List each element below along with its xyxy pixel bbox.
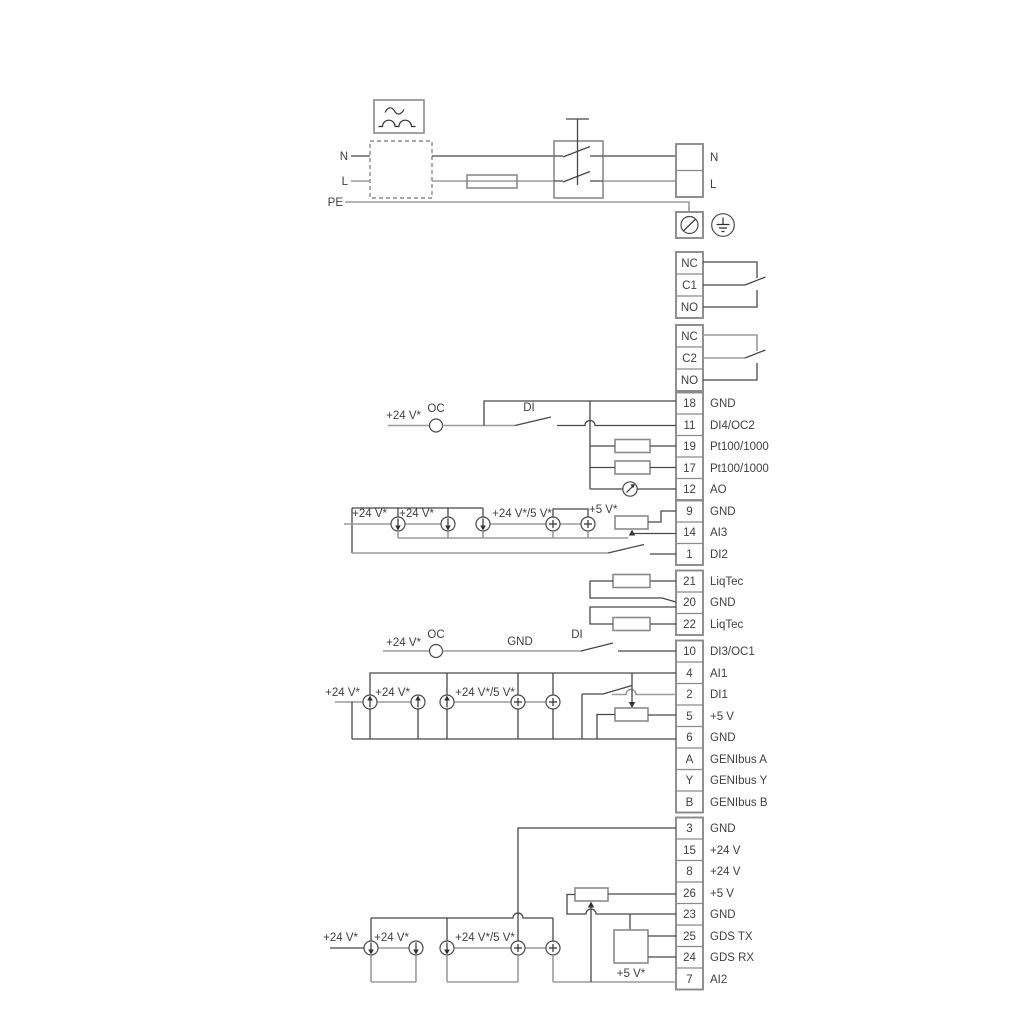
- terminal-id: C2: [682, 353, 697, 365]
- terminal-id: NO: [681, 302, 698, 314]
- terminal-id: 4: [686, 668, 693, 680]
- supply-label: +24 V*/5 V*: [492, 508, 552, 520]
- label-n: N: [340, 151, 348, 163]
- terminal-label: AI1: [710, 668, 727, 680]
- terminal-id: 14: [683, 527, 696, 539]
- terminal-label: GND: [710, 506, 736, 518]
- terminal-id: 2: [686, 689, 692, 701]
- terminal-label: Pt100/1000: [710, 441, 769, 453]
- voltage-source-icon: [546, 941, 560, 955]
- voltage-source-icon: [511, 695, 525, 709]
- current-source-icon: [364, 941, 378, 955]
- current-source-icon: [409, 941, 423, 955]
- wire: [597, 715, 615, 740]
- terminal-label: GENIbus Y: [710, 775, 768, 787]
- bus-drop: [398, 531, 588, 538]
- terminal-label: +24 V: [710, 866, 741, 878]
- terminal-label: GENIbus A: [710, 754, 767, 766]
- power-section: N L PE N L: [328, 100, 735, 238]
- gnd-wire: [518, 828, 676, 941]
- filter-dashed-box: [370, 141, 432, 198]
- supply-label: +24 V*: [352, 508, 387, 520]
- terminal-id: 9: [686, 506, 692, 518]
- supply-label: +5 V*: [589, 504, 618, 516]
- current-source-icon: [441, 517, 455, 531]
- bus-wire: [371, 955, 416, 982]
- di-switch: [515, 417, 551, 426]
- terminal-id: 25: [683, 931, 696, 943]
- wiper-arrow: [629, 530, 635, 536]
- supply-label: +5 V*: [617, 968, 646, 980]
- terminal-id: 19: [683, 441, 696, 453]
- supply-label: +24 V*/5 V*: [455, 932, 515, 944]
- current-source-icon: [440, 941, 454, 955]
- main-switch: [554, 119, 603, 198]
- gnd-bracket: [484, 401, 676, 426]
- terminal-id: NO: [681, 375, 698, 387]
- earth-icon: [712, 214, 735, 237]
- di-label: DI: [571, 629, 583, 641]
- terminal-label: LiqTec: [710, 619, 743, 631]
- mains-waveform-icon: [374, 100, 424, 133]
- wiring-diagram: N L PE N L: [0, 0, 1024, 1024]
- oc-source-icon: [430, 645, 443, 658]
- wiper-arrow: [629, 702, 635, 708]
- terminal-id: 1: [686, 549, 692, 561]
- wire: [612, 690, 676, 695]
- di-switch: [608, 545, 644, 554]
- terminal-id: A: [686, 754, 694, 766]
- wire: [703, 290, 757, 307]
- terminal-label: GND: [710, 597, 736, 609]
- supply-label: +24 V*: [325, 687, 360, 699]
- wiring-diagram-page: N L PE N L: [0, 0, 1024, 1024]
- voltage-source-icon: [546, 695, 560, 709]
- terminal-id: 24: [683, 952, 696, 964]
- terminal-label: GDS RX: [710, 952, 754, 964]
- switch-box: [554, 141, 603, 198]
- terminal-label: +5 V: [710, 711, 734, 723]
- terminal-id: 17: [683, 463, 696, 475]
- terminal-id: C1: [682, 280, 697, 292]
- ai2-gds-circuit: +24 V* +24 V* +24 V*/5 V* +5 V*: [323, 828, 676, 982]
- di4-circuit: +24 V* OC DI: [386, 401, 676, 496]
- terminal-id: 6: [686, 732, 692, 744]
- terminal-label: GDS TX: [710, 931, 753, 943]
- pt100-resistor: [615, 440, 650, 453]
- terminal-label: GENIbus B: [710, 797, 768, 809]
- wire: [557, 421, 676, 426]
- supply-label: +24 V*: [386, 410, 421, 422]
- wire: [703, 335, 757, 351]
- terminal-label: AI2: [710, 974, 727, 986]
- oc-source-icon: [430, 419, 443, 432]
- terminal-label: GND: [710, 398, 736, 410]
- bus-drop: [370, 709, 553, 739]
- oc-label: OC: [427, 629, 444, 641]
- terminal-id: 22: [683, 619, 696, 631]
- terminal-block-2: 9 GND 14 AI3 1 DI2: [676, 501, 736, 566]
- ai1-di1-circuit: +24 V* +24 V* +24 V*/5 V*: [325, 673, 676, 739]
- label-l: L: [342, 176, 349, 188]
- supply-label: +24 V*: [374, 932, 409, 944]
- terminal-label: AI3: [710, 527, 727, 539]
- relay-output-1: NC C1 NO: [676, 252, 766, 318]
- current-source-icon: [476, 517, 490, 531]
- terminal-id: 10: [683, 646, 696, 658]
- bus-wire: [371, 913, 553, 918]
- terminal-id: 3: [686, 823, 692, 835]
- di3-circuit: +24 V* OC GND DI: [383, 629, 676, 658]
- relay-contact: [703, 277, 766, 285]
- terminal-id: Y: [686, 775, 694, 787]
- pt100-resistor: [615, 461, 650, 474]
- terminal-id: 15: [683, 845, 696, 857]
- relay-contact: [745, 350, 766, 358]
- ai3-di2-circuit: +24 V* +24 V* +24 V*/5 V* +5 V*: [344, 504, 676, 554]
- terminal-label: DI1: [710, 689, 728, 701]
- terminal-id: 8: [686, 866, 692, 878]
- terminal-block-5: 3 GND 15 +24 V 8 +24 V 26 +5 V 23 GND 25…: [676, 818, 754, 990]
- terminal-label: N: [710, 152, 718, 164]
- wire: [703, 262, 757, 278]
- mains-box: [374, 100, 424, 133]
- liqtec-sensor: [613, 618, 650, 631]
- wire: [703, 363, 757, 380]
- supply-label: +24 V*/5 V*: [455, 687, 515, 699]
- terminal-id: B: [686, 797, 694, 809]
- terminal-label: L: [710, 179, 717, 191]
- terminal-label: LiqTec: [710, 576, 743, 588]
- supply-label: +24 V*: [323, 932, 358, 944]
- gds-module-box: [614, 930, 648, 963]
- bus-bracket: [553, 509, 588, 517]
- cable-gland-icon: [676, 212, 703, 238]
- liqtec-sensor-circuit: [590, 575, 676, 631]
- terminal-id: NC: [681, 331, 698, 343]
- terminal-id: 20: [683, 597, 696, 609]
- current-source-icon: [440, 695, 454, 709]
- terminal-id: 7: [686, 974, 692, 986]
- current-source-icon: [363, 695, 377, 709]
- terminal-label: AO: [710, 484, 727, 496]
- terminal-id: 26: [683, 888, 696, 900]
- terminal-block-1: 18 GND 11 DI4/OC2 19 Pt100/1000 17 Pt100…: [676, 393, 769, 501]
- analog-output-meter-icon: [623, 482, 637, 496]
- di-switch: [603, 686, 632, 695]
- wire: [648, 511, 676, 522]
- voltage-source-icon: [511, 941, 525, 955]
- terminal-label: GND: [710, 823, 736, 835]
- relay-output-2: NC C2 NO: [676, 325, 766, 391]
- liqtec-sensor: [613, 575, 650, 588]
- pe-wire: [345, 202, 689, 212]
- terminal-id: 23: [683, 909, 696, 921]
- terminal-block-nl: N L: [676, 144, 718, 197]
- supply-label: +24 V*: [375, 687, 410, 699]
- wire: [648, 936, 676, 957]
- current-source-icon: [391, 517, 405, 531]
- voltage-source-icon: [546, 517, 560, 531]
- supply-label: +24 V*: [399, 508, 434, 520]
- terminal-label: DI4/OC2: [710, 420, 755, 432]
- current-source-icon: [411, 695, 425, 709]
- terminal-label: GND: [710, 732, 736, 744]
- terminal-label: +5 V: [710, 888, 734, 900]
- terminal-block-4: 10 DI3/OC1 4 AI1 2 DI1 5 +5 V 6 GND A GE…: [676, 641, 768, 813]
- terminal-label: +24 V: [710, 845, 741, 857]
- wire: [582, 694, 603, 739]
- label-pe: PE: [328, 197, 344, 209]
- bus-wire: [370, 673, 676, 695]
- terminal-id: NC: [681, 258, 698, 270]
- setpoint-potentiometer: [597, 708, 676, 739]
- terminal-id: 5: [686, 711, 692, 723]
- di-label: DI: [523, 402, 535, 414]
- wiper-wire: [632, 534, 676, 535]
- setpoint-potentiometer: [615, 511, 676, 536]
- terminal-label: DI2: [710, 549, 728, 561]
- voltage-source-icon: [581, 517, 595, 531]
- terminal-label: Pt100/1000: [710, 463, 769, 475]
- terminal-label: GND: [710, 909, 736, 921]
- gnd-label: GND: [507, 636, 533, 648]
- terminal-block-3: 21 LiqTec 20 GND 22 LiqTec: [676, 571, 743, 636]
- oc-label: OC: [427, 403, 444, 415]
- terminal-id: 21: [683, 576, 696, 588]
- terminal-id: 11: [684, 420, 696, 432]
- terminal-id: 12: [683, 484, 696, 496]
- bus-wire: [447, 955, 518, 982]
- terminal-id: 18: [683, 398, 696, 410]
- terminal-label: DI3/OC1: [710, 646, 755, 658]
- supply-label: +24 V*: [386, 637, 421, 649]
- di-switch: [581, 643, 613, 651]
